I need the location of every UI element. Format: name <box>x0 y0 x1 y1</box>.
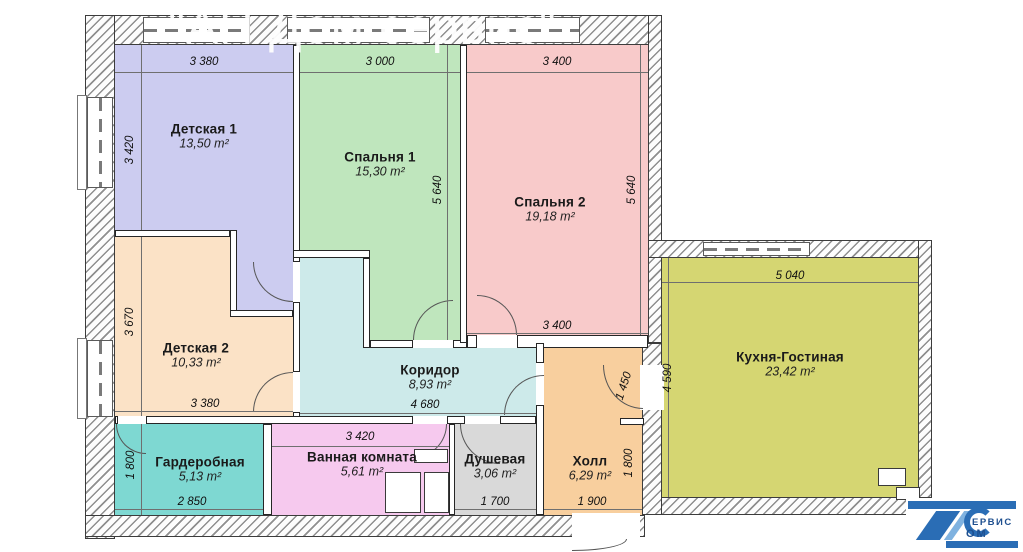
wall-van-dush <box>449 424 455 515</box>
wall-s2-bottom-a <box>467 335 477 348</box>
room-label-detskaya1: Детская 1 13,50 m² <box>171 122 237 151</box>
kitchen-fixture-1 <box>878 468 906 486</box>
wall-gard-van <box>263 424 272 515</box>
dim-vannaya-top: 3 420 <box>346 431 375 443</box>
dim-line <box>141 424 142 515</box>
dim-line <box>467 333 648 334</box>
room-area: 15,30 m² <box>344 165 415 179</box>
dim-detskaya1-left: 3 420 <box>124 136 136 165</box>
dim-line <box>544 509 642 510</box>
room-label-garderobnaya: Гардеробная 5,13 m² <box>155 455 245 484</box>
dim-line <box>300 413 536 414</box>
wall-kitchen-right <box>918 240 932 515</box>
room-area: 19,18 m² <box>514 210 585 224</box>
dim-spalnya2-top: 3 400 <box>543 56 572 68</box>
dim-line <box>141 237 142 416</box>
room-area: 5,13 m² <box>155 470 245 484</box>
wall-corridor-right-a <box>536 343 544 363</box>
room-label-vannaya: Ванная комната 5,61 m² <box>307 450 417 479</box>
room-name: Детская 2 <box>163 341 229 356</box>
room-label-spalnya1: Спальня 1 15,30 m² <box>344 150 415 179</box>
dim-hall-bottom: 1 900 <box>578 496 607 508</box>
room-area: 8,93 m² <box>400 378 460 392</box>
logo-top-bar <box>908 501 1016 509</box>
logo-text-dom: ОМ <box>966 528 988 540</box>
dim-line <box>455 509 536 510</box>
room-area: 23,42 m² <box>736 365 844 379</box>
room-area: 3,06 m² <box>465 467 526 481</box>
window-sill-1 <box>77 95 87 190</box>
room-name: Спальня 1 <box>344 150 415 165</box>
dim-spalnya2-right: 5 640 <box>626 176 638 205</box>
wall-center-a <box>293 45 300 262</box>
window-kitchen <box>703 242 810 256</box>
room-name: Детская 1 <box>171 122 237 137</box>
dim-line <box>272 446 449 447</box>
dim-line <box>115 411 293 412</box>
entrance-opening <box>572 513 640 541</box>
wall-s1-lower-left <box>363 258 370 348</box>
dim-line <box>662 282 918 283</box>
room-area: 6,29 m² <box>569 469 611 483</box>
room-fill-spalnya1 <box>300 45 460 250</box>
floor-plan: 3 380 3 000 3 400 3 420 3 670 1 800 5 64… <box>0 0 1023 552</box>
room-name: Кухня-Гостиная <box>736 350 844 365</box>
room-name: Гардеробная <box>155 455 245 470</box>
agency-logo: ЕРВИС ОМ <box>906 498 1018 550</box>
wall-rooms-top-a <box>115 416 118 424</box>
room-fill-spalnya2 <box>467 45 648 335</box>
bathroom-sink <box>414 449 448 463</box>
dim-detskaya2-left: 3 670 <box>124 308 136 337</box>
room-label-dushevaya: Душевая 3,06 m² <box>465 452 526 481</box>
room-label-holl: Холл 6,29 m² <box>569 454 611 483</box>
kitchen-door-opening <box>640 365 664 410</box>
dim-kitchen-left: 4 590 <box>662 364 674 393</box>
room-label-spalnya2: Спальня 2 19,18 m² <box>514 195 585 224</box>
logo-text-servis: ЕРВИС <box>972 517 1013 528</box>
dim-hall-right: 1 800 <box>623 449 635 478</box>
room-area: 13,50 m² <box>171 137 237 151</box>
bathroom-fixture-2 <box>424 472 449 513</box>
window-left-detskaya2 <box>87 340 113 417</box>
dim-line <box>115 509 263 510</box>
wall-kitchen-bottom <box>642 497 932 515</box>
wall-s1-bottom-a <box>370 340 413 348</box>
wall-right-upper <box>648 15 662 343</box>
wall-corridor-right-b <box>536 405 544 515</box>
dim-garderob-bottom: 2 850 <box>178 496 207 508</box>
dim-detskaya1-top: 3 380 <box>190 56 219 68</box>
wall-s1-notch <box>293 250 370 258</box>
room-label-koridor: Коридор 8,93 m² <box>400 363 460 392</box>
dim-spalnya1-right: 5 640 <box>432 176 444 205</box>
wall-nook-left <box>230 230 237 317</box>
wall-rooms-top-c <box>447 416 465 424</box>
dim-line <box>300 72 460 73</box>
wall-d1-d2 <box>115 230 230 237</box>
dim-line <box>447 45 448 340</box>
dim-spalnya1-top: 3 000 <box>366 56 395 68</box>
dim-spalnya2-bottom: 3 400 <box>543 320 572 332</box>
room-label-kuhnya: Кухня-Гостиная 23,42 m² <box>736 350 844 379</box>
dim-line <box>467 72 648 73</box>
dim-detskaya2-bottom: 3 380 <box>191 398 220 410</box>
dim-line <box>640 45 641 335</box>
room-fill-koridor-strip <box>300 258 363 348</box>
window-sill-2 <box>77 338 87 419</box>
room-name: Спальня 2 <box>514 195 585 210</box>
wall-s1-s2 <box>460 45 467 343</box>
wall-rooms-top-b <box>146 416 413 424</box>
wall-center-b <box>293 302 300 372</box>
door-arc-entrance <box>572 539 627 551</box>
room-area: 10,33 m² <box>163 356 229 370</box>
room-label-detskaya2: Детская 2 10,33 m² <box>163 341 229 370</box>
room-name: Ванная комната <box>307 450 417 465</box>
room-name: Душевая <box>465 452 526 467</box>
agency-watermark: "АН Дом сервис" <box>168 0 557 55</box>
room-name: Холл <box>569 454 611 469</box>
room-name: Коридор <box>400 363 460 378</box>
window-left-detskaya1 <box>87 97 113 188</box>
dim-corridor-bottom: 4 680 <box>411 399 440 411</box>
logo-bottom-bar <box>946 541 1018 548</box>
dim-garderob-left: 1 800 <box>125 451 137 480</box>
dim-kitchen-top: 5 040 <box>776 270 805 282</box>
wall-holl-stub <box>620 418 644 425</box>
room-area: 5,61 m² <box>307 465 417 479</box>
dim-dush-bottom: 1 700 <box>481 496 510 508</box>
wall-left <box>85 15 115 539</box>
wall-rooms-top-d <box>500 416 536 424</box>
wall-bottom-left-part <box>85 515 645 537</box>
wall-nook-bottom <box>230 310 293 317</box>
dim-line <box>141 45 142 230</box>
